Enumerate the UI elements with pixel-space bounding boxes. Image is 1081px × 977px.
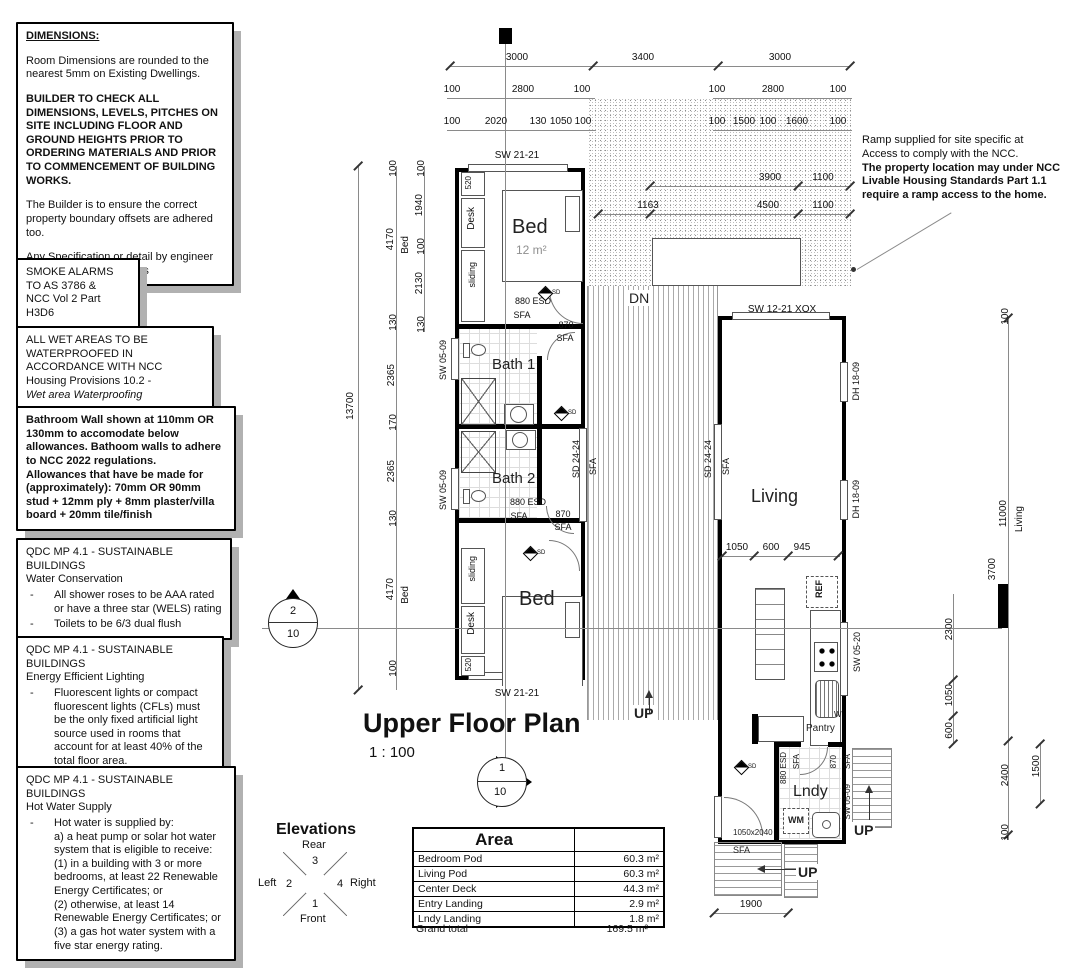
dim-line xyxy=(358,166,359,690)
area-table-grand-total: Grand total 169.5 m² xyxy=(412,921,652,937)
table-row: Living Pod60.3 m² xyxy=(413,867,664,882)
area-name: Living Pod xyxy=(413,867,575,882)
room-label-living: Living xyxy=(751,486,798,507)
note-line: NCC Vol 2 Part H3D6 xyxy=(26,293,130,320)
dim-label: 520 xyxy=(464,176,473,189)
door-label: 870 xyxy=(829,755,838,768)
dim-label: 1163 xyxy=(637,200,659,211)
dim-line xyxy=(447,130,595,131)
dim-label: Bed xyxy=(400,236,411,254)
room-label-bath1: Bath 1 xyxy=(492,356,535,373)
dim-label: 100 xyxy=(575,116,592,127)
note-line: The property location may under NCC xyxy=(862,162,1080,176)
room-label-lndy: Lndy xyxy=(793,783,828,801)
room-label-bed-bottom: Bed xyxy=(519,588,555,611)
dim-line xyxy=(722,556,840,557)
note-paragraph: The Builder is to ensure the correct pro… xyxy=(26,199,224,240)
dishwasher-label: W xyxy=(834,710,842,719)
note-line: require a ramp access to the home. xyxy=(862,189,1080,203)
stair-label-up-bottom: UP xyxy=(796,864,819,880)
center-deck xyxy=(587,286,718,720)
dim-label: 13700 xyxy=(345,392,356,420)
left-arrow-stem xyxy=(764,869,796,870)
up-arrow-icon xyxy=(865,785,873,793)
elevation-number: 3 xyxy=(312,855,318,867)
floor-plan-sheet: DIMENSIONS: Room Dimensions are rounded … xyxy=(0,0,1081,977)
dim-label: 4500 xyxy=(757,200,779,211)
area-table-header: Area xyxy=(413,828,575,852)
leader-dot xyxy=(851,267,856,272)
door-label: SD 24-24 xyxy=(571,440,581,478)
dim-label: 520 xyxy=(464,658,473,671)
note-paragraph: Allowances that have be made for (approx… xyxy=(26,469,226,524)
note-line: Livable Housing Standards Part 1.1 xyxy=(862,175,1080,189)
note-hot-water: QDC MP 4.1 - SUSTAINABLE BUILDINGS Hot W… xyxy=(16,766,236,961)
section-number: 1 xyxy=(499,762,505,774)
dim-label: 130 xyxy=(416,316,427,333)
grid-line-vertical xyxy=(505,30,506,785)
grand-total-label: Grand total xyxy=(416,923,468,935)
wall xyxy=(537,356,542,426)
stair-label-dn: DN xyxy=(627,290,651,306)
dim-label: 100 xyxy=(760,116,777,127)
dim-label: 100 xyxy=(574,84,591,95)
ramp-landing xyxy=(652,238,801,286)
door-label: 870 xyxy=(555,509,570,519)
dim-line xyxy=(713,130,852,131)
dim-bar-3700 xyxy=(998,584,1008,628)
note-ramp: Ramp supplied for site specific at Acces… xyxy=(862,134,1080,203)
dim-label: 100 xyxy=(444,116,461,127)
section-sheet: 10 xyxy=(494,786,506,798)
note-title: QDC MP 4.1 - SUSTAINABLE BUILDINGS xyxy=(26,774,226,801)
dim-label: 2365 xyxy=(386,460,397,482)
elevations-title: Elevations xyxy=(276,821,356,839)
pillow xyxy=(565,196,580,232)
note-smoke-alarms: SMOKE ALARMS TO AS 3786 & NCC Vol 2 Part… xyxy=(16,258,140,329)
shower-bath2 xyxy=(461,431,496,473)
door-label: SD 24-24 xyxy=(703,440,713,478)
note-line: SMOKE ALARMS xyxy=(26,266,130,280)
table-row: Bedroom Pod60.3 m² xyxy=(413,852,664,867)
room-label-bath2: Bath 2 xyxy=(492,470,535,487)
dim-label: 100 xyxy=(830,116,847,127)
dim-label: 3000 xyxy=(506,52,528,63)
dim-label: 100 xyxy=(1000,824,1011,841)
door-label: SFA xyxy=(733,845,750,855)
grid-line-horizontal xyxy=(262,628,1002,629)
basin-bath2 xyxy=(512,432,528,448)
room-area-label: 12 m² xyxy=(516,243,547,257)
dim-label: 4170 xyxy=(385,228,396,250)
area-value: 60.3 m² xyxy=(575,867,665,882)
cooktop xyxy=(814,642,838,672)
door-label: SFA xyxy=(554,522,571,532)
note-bullet-body: Hot water is supplied by: a) a heat pump… xyxy=(54,817,226,953)
note-paragraph: Room Dimensions are rounded to the neare… xyxy=(26,55,224,82)
dim-label: 100 xyxy=(709,116,726,127)
grand-total-value: 169.5 m² xyxy=(607,923,648,935)
dim-label: 3000 xyxy=(769,52,791,63)
note-line-italic: Wet area Waterproofing xyxy=(26,389,204,403)
dim-label: 4170 xyxy=(385,578,396,600)
cross-center-gap xyxy=(306,875,324,893)
dim-label: 3900 xyxy=(759,172,781,183)
window-sw0509-bath1 xyxy=(451,338,459,380)
dim-label: 2300 xyxy=(944,618,955,640)
door-label: SFA xyxy=(588,458,598,475)
area-name: Bedroom Pod xyxy=(413,852,575,867)
window-sw2121-top xyxy=(468,164,568,172)
window-label: SW 05-20 xyxy=(852,632,862,672)
dim-label: Bed xyxy=(400,586,411,604)
table-row: Entry Landing2.9 m² xyxy=(413,897,664,912)
dim-label: 100 xyxy=(388,660,399,677)
door-label: 880 ESD xyxy=(779,752,788,784)
pantry-cabinet xyxy=(758,716,804,742)
dim-label: 130 xyxy=(388,510,399,527)
note-title: QDC MP 4.1 - SUSTAINABLE BUILDINGS xyxy=(26,644,214,671)
leader-line xyxy=(857,212,952,270)
note-line: Ramp supplied for site specific at xyxy=(862,134,1080,148)
grid-marker-top xyxy=(499,28,512,44)
toilet-bowl-bath2 xyxy=(471,490,486,502)
room-label: Desk xyxy=(466,207,477,230)
dim-label: 100 xyxy=(830,84,847,95)
dim-line xyxy=(1008,316,1009,840)
note-line: ALL WET AREAS TO BE WATERPROOFED IN ACCO… xyxy=(26,334,162,387)
fridge-label: REF xyxy=(814,580,824,598)
dim-label: 1900 xyxy=(740,899,762,910)
note-bullet: - Hot water is supplied by: a) a heat pu… xyxy=(30,817,226,953)
tub-drain xyxy=(822,820,831,829)
washing-machine-label: WM xyxy=(788,815,804,825)
dim-line xyxy=(650,186,850,187)
area-table: Area Bedroom Pod60.3 m² Living Pod60.3 m… xyxy=(412,827,665,928)
door-label: SFA xyxy=(510,511,527,521)
area-table-header-value xyxy=(575,828,665,852)
plan-title: Upper Floor Plan xyxy=(363,708,581,739)
note-dimensions: DIMENSIONS: Room Dimensions are rounded … xyxy=(16,22,234,286)
smoke-detector-label: SD xyxy=(568,410,576,416)
stair-label-up-right: UP xyxy=(852,822,875,838)
dim-label: 1940 xyxy=(414,194,425,216)
dim-label: 100 xyxy=(416,238,427,255)
basin-bath1 xyxy=(510,406,527,423)
room-label: Desk xyxy=(466,612,477,635)
toilet-bath2 xyxy=(463,489,470,504)
dim-label: 100 xyxy=(1000,308,1011,325)
window-label: DH 18-09 xyxy=(851,480,861,519)
left-arrow-icon xyxy=(757,865,765,873)
dim-label: 3400 xyxy=(632,52,654,63)
note-bullet: -All shower roses to be AAA rated or hav… xyxy=(30,589,222,616)
dim-label: 1500 xyxy=(1031,755,1042,777)
dim-label: 945 xyxy=(794,542,811,553)
dim-label: 2800 xyxy=(762,84,784,95)
door-label: 870 xyxy=(558,320,573,330)
note-subtitle: Energy Efficient Lighting xyxy=(26,671,214,685)
elevation-label-front: Front xyxy=(300,913,326,925)
dim-line xyxy=(713,98,852,99)
elevation-label-left: Left xyxy=(258,877,276,889)
dim-label: 2365 xyxy=(386,364,397,386)
pillow xyxy=(565,602,580,638)
dim-label: 3700 xyxy=(987,558,998,580)
stair-label-up-deck: UP xyxy=(632,705,655,721)
toilet-bath1 xyxy=(463,343,470,358)
dim-label: 100 xyxy=(709,84,726,95)
note-paragraph: Bathroom Wall shown at 110mm OR 130mm to… xyxy=(26,414,226,469)
elevation-label-right: Right xyxy=(350,877,376,889)
window-label: DH 18-09 xyxy=(851,362,861,401)
elevation-number: 2 xyxy=(286,878,292,890)
section-sheet: 10 xyxy=(287,628,299,640)
note-water-conservation: QDC MP 4.1 - SUSTAINABLE BUILDINGS Water… xyxy=(16,538,232,640)
dim-label: 1100 xyxy=(812,200,834,211)
smoke-detector-label: SD xyxy=(537,550,545,556)
dim-label: 130 xyxy=(388,314,399,331)
dim-label: 2800 xyxy=(512,84,534,95)
door-label: SFA xyxy=(792,754,801,769)
toilet-bowl-bath1 xyxy=(471,344,486,356)
area-value: 60.3 m² xyxy=(575,852,665,867)
dim-label: 170 xyxy=(388,414,399,431)
room-label-pantry: Pantry xyxy=(806,723,835,734)
area-table-header-row: Area xyxy=(413,828,664,852)
door-label: SFA xyxy=(843,754,852,769)
door-label: SFA xyxy=(556,333,573,343)
door-label: SFA xyxy=(513,310,530,320)
note-bullet: -Fluorescent lights or compact fluoresce… xyxy=(30,687,214,769)
window-dh1809-2 xyxy=(840,480,848,520)
window-label: SW 12-21 XOX xyxy=(748,304,816,315)
table-row: Center Deck44.3 m² xyxy=(413,882,664,897)
note-line: TO AS 3786 & xyxy=(26,280,130,294)
dim-label: 1500 xyxy=(733,116,755,127)
dim-label: 2400 xyxy=(1000,764,1011,786)
note-subtitle: Water Conservation xyxy=(26,573,222,587)
window-label: SW 21-21 xyxy=(495,688,539,699)
note-title: DIMENSIONS: xyxy=(26,30,224,44)
dim-label: 1050 xyxy=(944,684,955,706)
dim-line xyxy=(447,98,595,99)
room-label: sliding xyxy=(467,556,477,582)
up-arrow-stem xyxy=(649,697,650,713)
shower-bath1 xyxy=(461,378,496,425)
dim-label: 1600 xyxy=(786,116,808,127)
dim-label: 11000 xyxy=(998,500,1009,527)
note-paragraph: BUILDER TO CHECK ALL DIMENSIONS, LEVELS,… xyxy=(26,93,224,188)
dim-line xyxy=(714,913,788,914)
smoke-detector-label: SD xyxy=(552,290,560,296)
window-label: SW 21-21 xyxy=(495,150,539,161)
dim-label: 2130 xyxy=(414,272,425,294)
dim-label: 600 xyxy=(763,542,780,553)
up-arrow-icon xyxy=(645,690,653,698)
dim-label: 100 xyxy=(388,160,399,177)
window-sw0520 xyxy=(840,622,848,696)
note-subtitle: Hot Water Supply xyxy=(26,801,226,815)
dim-label: 600 xyxy=(944,722,955,739)
note-bullet: -Toilets to be 6/3 dual flush xyxy=(30,618,222,632)
note-line: Access to comply with the NCC. xyxy=(862,148,1080,162)
dim-label: 2020 xyxy=(485,116,507,127)
note-title: QDC MP 4.1 - SUSTAINABLE BUILDINGS xyxy=(26,546,222,573)
dim-label: 1050 xyxy=(550,116,572,127)
dim-label: 100 xyxy=(444,84,461,95)
area-name: Entry Landing xyxy=(413,897,575,912)
elevation-number: 4 xyxy=(337,878,343,890)
dim-line xyxy=(598,214,850,215)
entry-door-gap xyxy=(714,796,722,838)
note-wet-areas: ALL WET AREAS TO BE WATERPROOFED IN ACCO… xyxy=(16,326,214,410)
door-label: 880 ESD xyxy=(510,497,546,507)
window-label: SW 05-09 xyxy=(843,784,852,820)
up-arrow-stem xyxy=(869,792,870,820)
dim-label: 100 xyxy=(416,160,427,177)
dim-label: 130 xyxy=(530,116,547,127)
window-label: SW 05-09 xyxy=(438,470,448,510)
note-bathroom-wall: Bathroom Wall shown at 110mm OR 130mm to… xyxy=(16,406,236,531)
area-name: Center Deck xyxy=(413,882,575,897)
dim-label: Living xyxy=(1014,506,1025,532)
room-label: sliding xyxy=(467,262,477,288)
kitchen-island xyxy=(755,588,785,680)
note-energy-lighting: QDC MP 4.1 - SUSTAINABLE BUILDINGS Energ… xyxy=(16,636,224,777)
door-label-entry: 1050x2040 xyxy=(733,828,773,837)
room-label-bed-top: Bed xyxy=(512,216,548,239)
dim-line xyxy=(450,66,850,67)
section-number: 2 xyxy=(290,605,296,617)
window-sw0509-bath2 xyxy=(451,468,459,510)
dim-label: 1100 xyxy=(812,172,834,183)
plan-scale: 1 : 100 xyxy=(369,744,415,761)
area-value: 2.9 m² xyxy=(575,897,665,912)
dim-label: 1050 xyxy=(726,542,748,553)
section-marker-divider xyxy=(477,781,527,782)
window-dh1809-1 xyxy=(840,362,848,402)
elevation-number: 1 xyxy=(312,898,318,910)
elevation-label-rear: Rear xyxy=(302,839,326,851)
smoke-detector-label: SD xyxy=(748,764,756,770)
section-marker-divider xyxy=(268,622,318,623)
door-label: SFA xyxy=(721,458,731,475)
wall xyxy=(537,429,542,505)
area-value: 44.3 m² xyxy=(575,882,665,897)
window-label: SW 05-09 xyxy=(438,340,448,380)
